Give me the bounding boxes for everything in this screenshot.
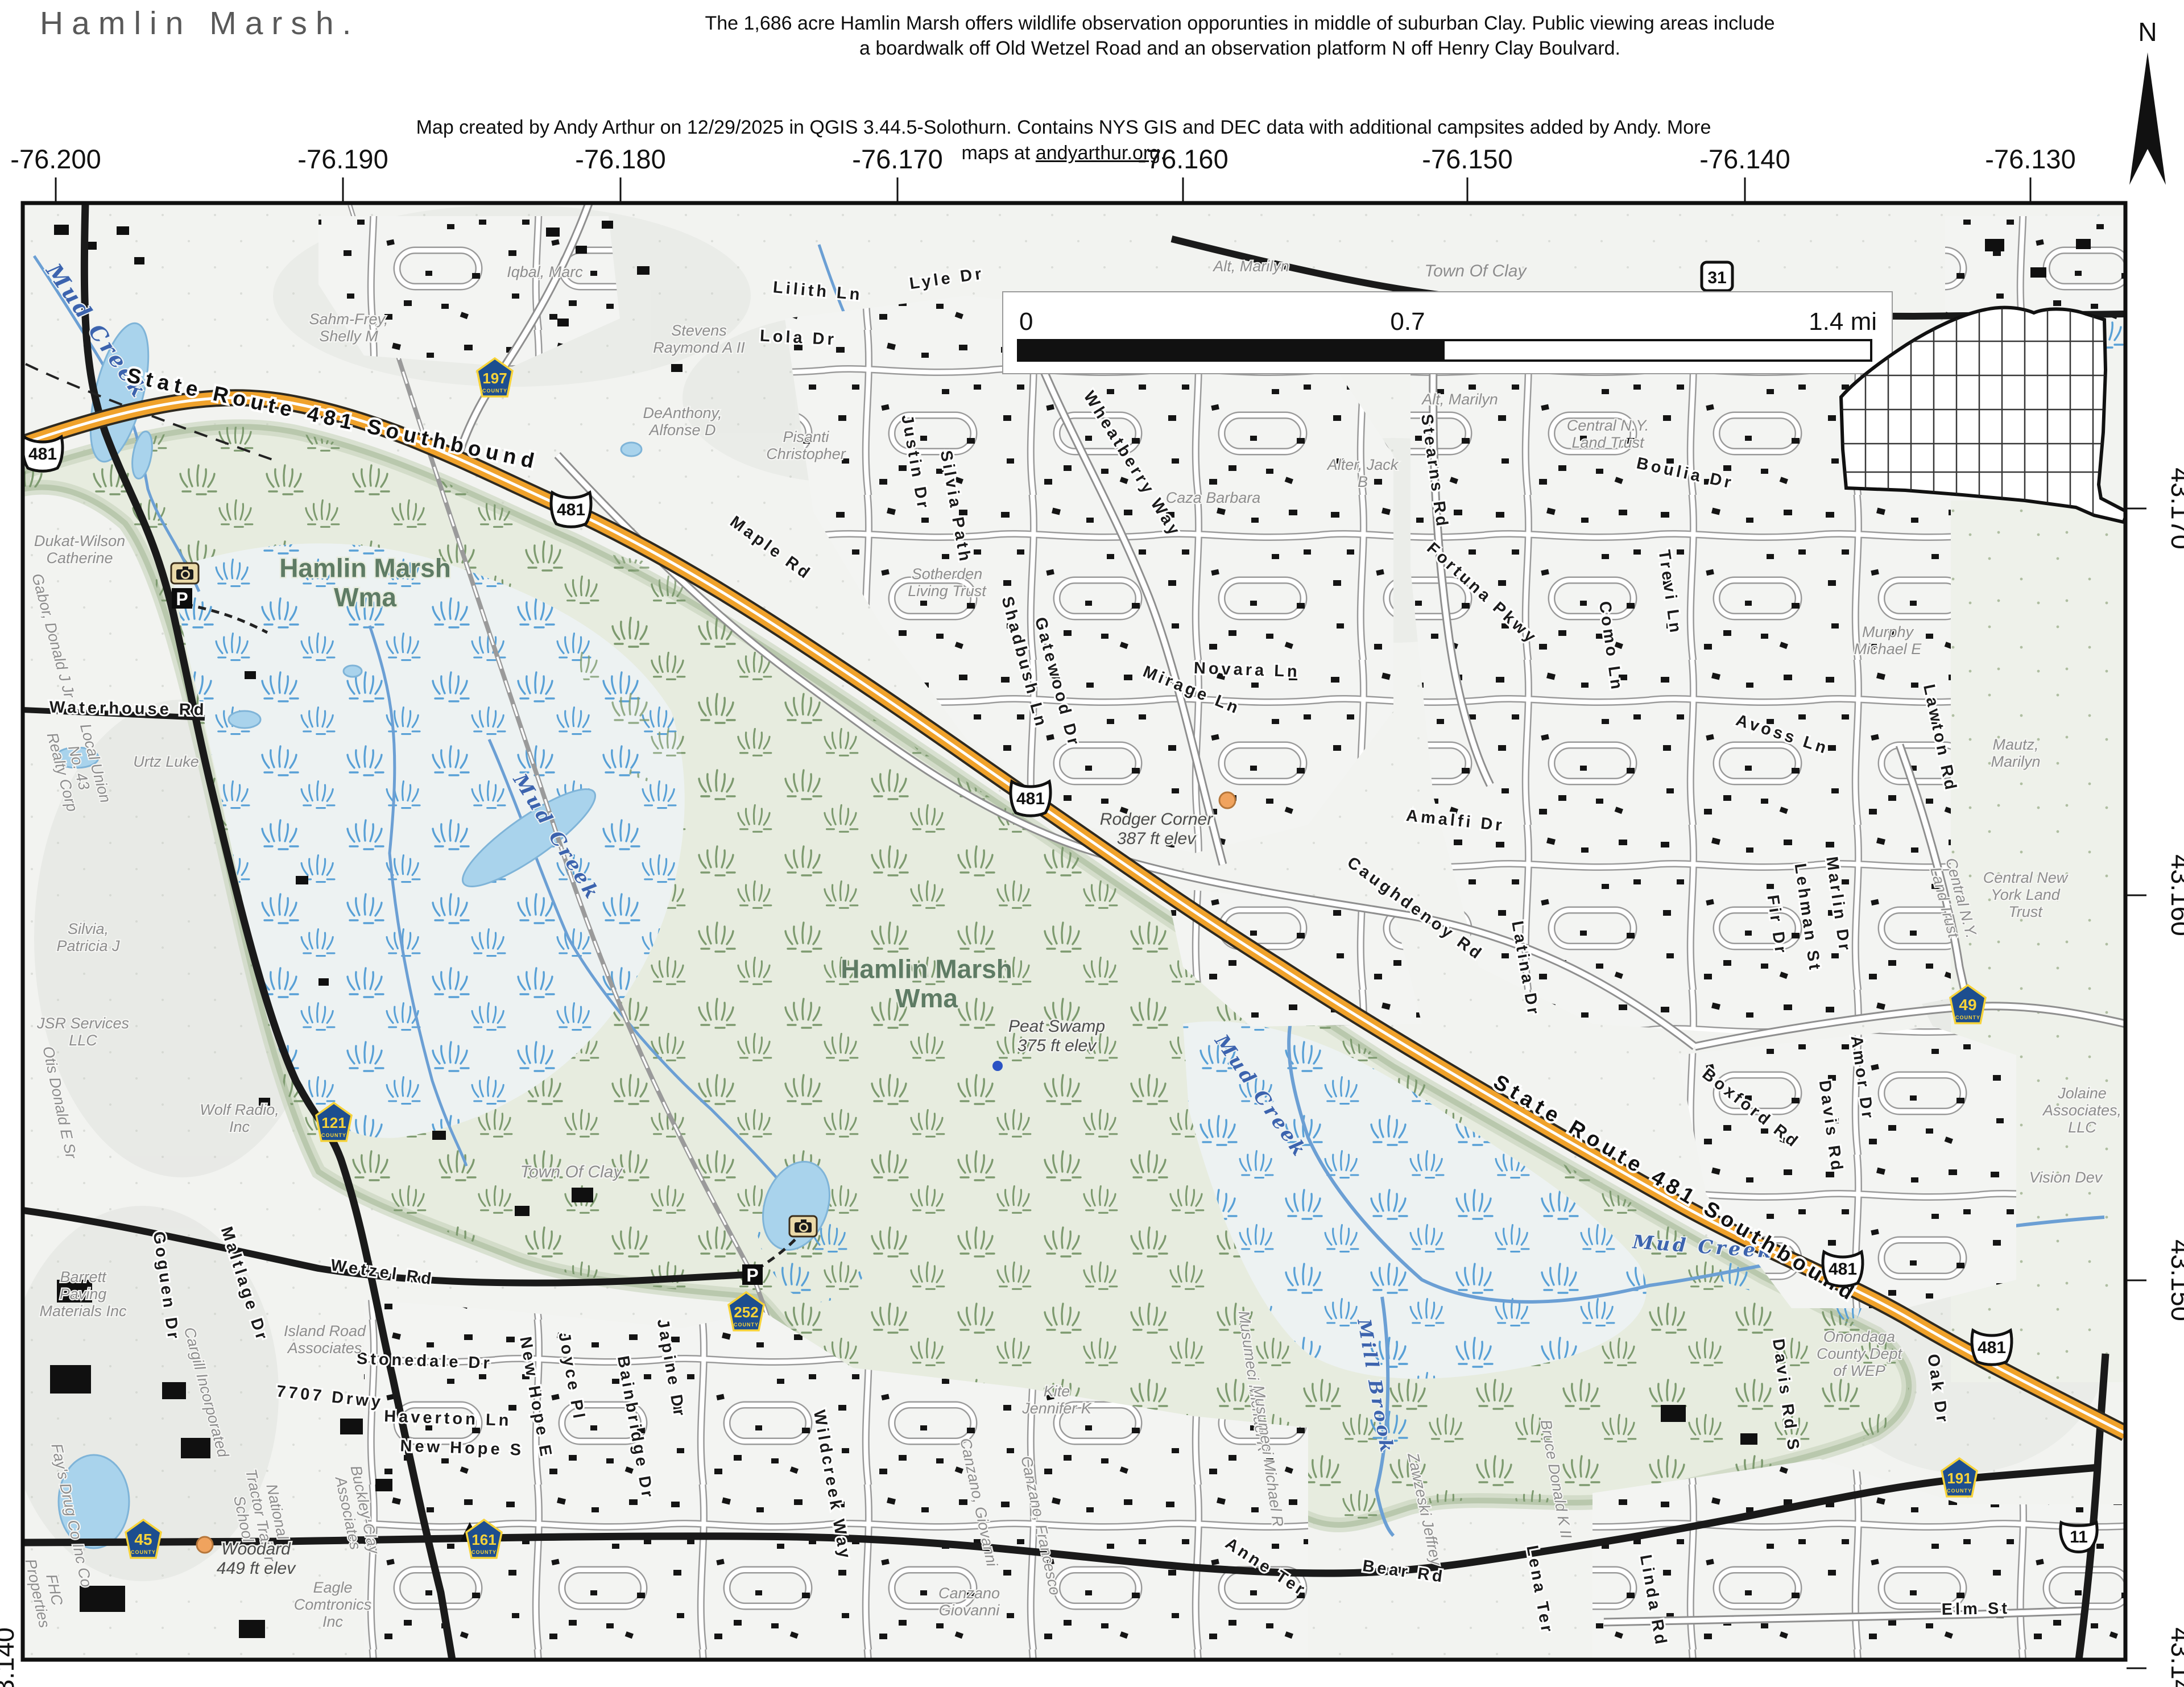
hamlet-dot — [197, 1537, 213, 1553]
north-arrow-icon — [2129, 52, 2166, 185]
map-label-town-of-clay: Town Of Clay — [1425, 262, 1528, 280]
map-label-murphy: MurphyMichael E — [1854, 623, 1922, 658]
map-label-central-n-y: Central N.Y.Land Trust — [1567, 417, 1649, 451]
map-label-vision-dev: Vision Dev — [2029, 1169, 2103, 1186]
parking-icon: P — [172, 588, 192, 609]
map-label-sotherden: SotherdenLiving Trust — [908, 565, 987, 599]
tick-label-right-43-170: 43.170 — [2166, 468, 2184, 549]
svg-text:481: 481 — [28, 445, 57, 464]
route-shield-11: 11 — [2061, 1523, 2097, 1552]
map-label-canzano: CanzanoGiovanni — [938, 1585, 1000, 1619]
route-shield-481: 481 — [1011, 782, 1050, 816]
tick-label-top-76-160: -76.160 — [1137, 144, 1228, 174]
map-label-island-road: Island RoadAssociates — [284, 1322, 366, 1357]
svg-text:COUNTY: COUNTY — [471, 1549, 497, 1555]
svg-text:481: 481 — [1829, 1260, 1857, 1279]
route-shield-481: 481 — [1972, 1330, 2012, 1365]
camera-icon — [171, 563, 198, 584]
scale-bar: 0 0.7 1.4 mi — [1003, 292, 1892, 374]
svg-text:481: 481 — [557, 501, 585, 519]
svg-text:COUNTY: COUNTY — [482, 388, 507, 394]
tick-label-top-76-180: -76.180 — [575, 144, 665, 174]
map-page: Hamlin Marsh. The 1,686 acre Hamlin Mars… — [0, 0, 2184, 1687]
tick-label-right-43-160: 43.160 — [2166, 854, 2184, 936]
map-label-iqbal-marc: Iqbal, Marc — [507, 263, 583, 280]
camera-icon — [789, 1216, 817, 1237]
svg-text:45: 45 — [134, 1531, 152, 1548]
map-label-alt-marilyn: Alt, Marilyn — [1421, 391, 1498, 408]
tick-label-top-76-130: -76.130 — [1985, 144, 2075, 174]
svg-text:31: 31 — [1707, 268, 1726, 287]
svg-text:191: 191 — [1947, 1470, 1971, 1487]
route-shield-481: 481 — [23, 437, 63, 471]
svg-text:P: P — [176, 589, 188, 609]
map-label-dukat-wilson: Dukat-WilsonCatherine — [34, 532, 125, 567]
svg-text:COUNTY: COUNTY — [1955, 1015, 1980, 1020]
route-shield-31: 31 — [1702, 262, 1732, 291]
svg-text:COUNTY: COUNTY — [321, 1132, 346, 1138]
scalebar-label-end: 1.4 mi — [1809, 308, 1877, 336]
svg-text:481: 481 — [1978, 1338, 2006, 1357]
svg-text:COUNTY: COUNTY — [734, 1322, 759, 1328]
route-shield-481: 481 — [551, 493, 591, 527]
tick-label-top-76-190: -76.190 — [297, 144, 388, 174]
map-label-caza-barbara: Caza Barbara — [1166, 489, 1261, 506]
svg-text:49: 49 — [1959, 996, 1976, 1014]
map-label-novara-ln: Novara Ln — [1193, 659, 1300, 681]
svg-text:P: P — [746, 1265, 758, 1285]
map-canvas: Mud CreekMud CreekMud CreekMud CreekMill… — [0, 0, 2184, 1687]
svg-text:481: 481 — [1016, 789, 1045, 808]
svg-text:161: 161 — [471, 1531, 496, 1548]
map-label-waterhouse-rd: Waterhouse Rd — [49, 698, 207, 720]
tick-label-left-43-140: 43.140 — [0, 1627, 19, 1687]
tick-label-right-43-140: 43.140 — [2166, 1627, 2184, 1687]
svg-text:197: 197 — [482, 370, 507, 387]
map-label-deanthony: DeAnthony,Alfonse D — [643, 404, 722, 439]
north-arrow: N — [2129, 17, 2166, 185]
tick-label-top-76-170: -76.170 — [852, 144, 942, 174]
hamlet-dot — [1219, 792, 1235, 808]
map-label-mautz: Mautz,Marilyn — [1991, 736, 2040, 770]
map-label-peat-swamp: Peat Swamp375 ft elev — [1008, 1017, 1105, 1055]
map-label-elm-st: Elm St — [1941, 1599, 2010, 1619]
map-frame-content: Mud CreekMud CreekMud CreekMud CreekMill… — [6, 203, 2144, 1660]
svg-text:252: 252 — [734, 1304, 758, 1321]
map-label-woodard: Woodard449 ft elev — [217, 1540, 296, 1578]
tick-label-top-76-140: -76.140 — [1699, 144, 1790, 174]
svg-text:121: 121 — [321, 1114, 346, 1131]
elev-dot — [992, 1061, 1003, 1071]
map-label-urtz-luke: Urtz Luke — [133, 753, 199, 770]
svg-text:COUNTY: COUNTY — [1947, 1488, 1972, 1494]
tick-label-top-76-150: -76.150 — [1422, 144, 1512, 174]
svg-text:COUNTY: COUNTY — [131, 1549, 156, 1555]
scalebar-label-start: 0 — [1019, 308, 1033, 336]
tick-label-top-76-200: -76.200 — [10, 144, 101, 174]
parking-icon: P — [742, 1264, 763, 1285]
map-label-town-of-clay: Town Of Clay — [520, 1163, 623, 1181]
scalebar-label-mid: 0.7 — [1390, 308, 1425, 336]
route-shield-481: 481 — [1823, 1252, 1863, 1286]
map-label-alt-marilyn: Alt, Marilyn — [1212, 258, 1289, 275]
tick-label-right-43-150: 43.150 — [2166, 1239, 2184, 1321]
map-label-sahm-frey: Sahm-Frey,Shelly M — [309, 311, 388, 345]
svg-text:11: 11 — [2070, 1528, 2088, 1547]
north-label: N — [2138, 17, 2157, 47]
